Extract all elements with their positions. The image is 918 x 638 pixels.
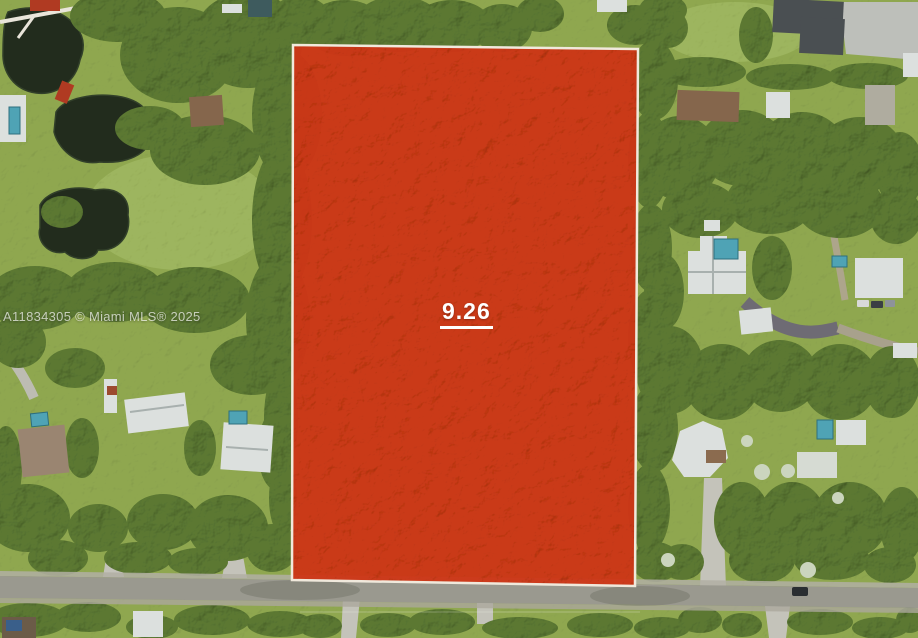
brown-patch-tent [706, 450, 726, 463]
gray-house-right-edge [865, 85, 895, 125]
small-white-structure-top [222, 4, 242, 13]
pool-big-white-house [714, 239, 738, 259]
aerial-listing-photo: A11834305 © Miami MLS® 2025 9.26 [0, 0, 918, 638]
pool-left-edge [9, 107, 20, 134]
solar-panels [6, 620, 22, 631]
red-truck [107, 386, 117, 395]
house-bottom-left-1 [18, 425, 70, 478]
dark-house-top-right-b [799, 17, 845, 55]
shed-right-edge-top [903, 53, 918, 77]
brown-house-left [189, 95, 224, 127]
mls-watermark: A11834305 © Miami MLS® 2025 [3, 309, 201, 324]
shed-right-edge [893, 343, 917, 358]
trailer [104, 379, 117, 413]
tarp-structures [797, 452, 837, 478]
small-white-roof-top-right [766, 92, 790, 118]
shed-bottom-right [836, 420, 866, 445]
car-on-road [792, 587, 808, 596]
pool-bottom-right [817, 420, 833, 439]
parcel-acreage-label: 9.26 [440, 298, 493, 329]
concrete-driveway-top-right [840, 2, 918, 60]
house-right-edge-mid [855, 258, 903, 298]
brown-house-right [676, 90, 739, 122]
small-shed [704, 220, 720, 231]
pool-right-mid [832, 256, 847, 267]
gazebo-roof [30, 0, 60, 11]
pool-bottom-left-3 [229, 411, 247, 424]
teal-patch-top [248, 0, 272, 17]
pyramid-roof-house [133, 611, 163, 637]
pool-bottom-left-1 [30, 412, 48, 427]
pale-structure-top [597, 0, 627, 12]
white-structure-mid-right [739, 307, 773, 334]
